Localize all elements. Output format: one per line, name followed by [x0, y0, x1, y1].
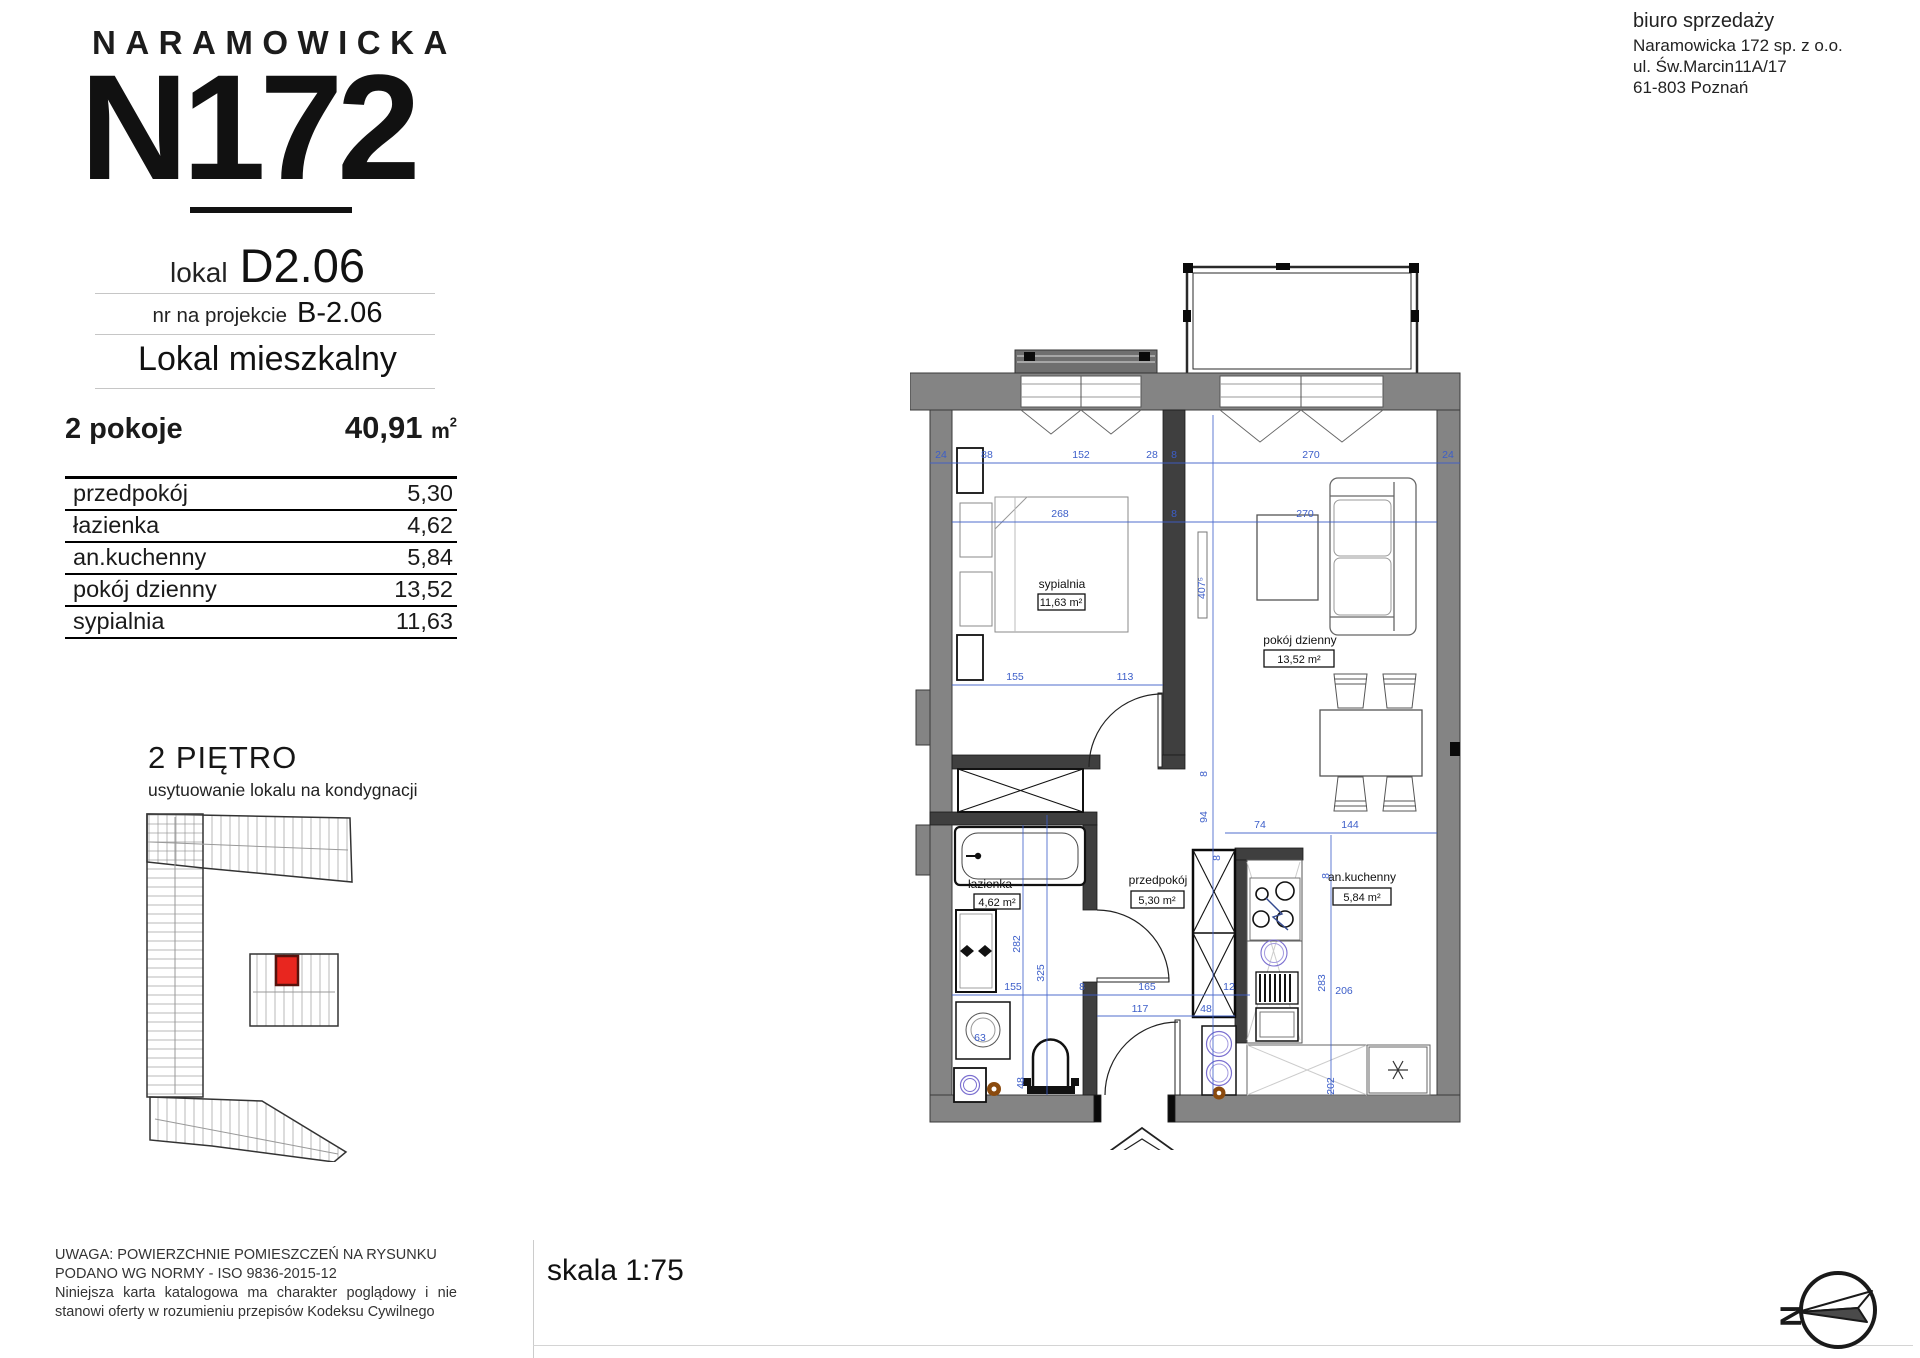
- room-name: pokój dzienny: [1263, 633, 1336, 647]
- scale-label: skala 1:75: [547, 1254, 684, 1288]
- disclaimer-line: UWAGA: POWIERZCHNIE POMIESZCZEŃ NA RYSUN…: [55, 1246, 457, 1265]
- lokal-label: lokal: [170, 257, 228, 289]
- dimension-label: 202: [1325, 1077, 1337, 1095]
- dimension-label: 283: [1316, 974, 1328, 992]
- dimension-label: 144: [1341, 819, 1359, 831]
- room-row: łazienka4,62: [65, 511, 457, 543]
- project-label: nr na projekcie: [153, 304, 287, 328]
- dimension-label: 325: [1035, 964, 1047, 982]
- room-area: 5,84 m²: [1343, 892, 1381, 904]
- dimension-label: 268: [1051, 508, 1069, 520]
- dimension-label: 206: [1335, 985, 1353, 997]
- room-area: 4,62 m²: [978, 897, 1016, 909]
- total-area-sup: 2: [450, 415, 457, 430]
- rooms-table-body: przedpokój5,30łazienka4,62an.kuchenny5,8…: [65, 479, 457, 639]
- divider: [95, 388, 435, 389]
- room-area: 11,63: [396, 607, 453, 635]
- north-letter: N: [1774, 1305, 1807, 1327]
- dimension-label: 113: [1117, 671, 1134, 683]
- dimension-label: 24: [935, 449, 947, 461]
- building-logo: N172: [80, 52, 415, 202]
- rooms-count: 2 pokoje: [65, 413, 183, 446]
- dimension-label: 8: [1198, 771, 1210, 777]
- dimension-label: 24: [1442, 449, 1454, 461]
- room-name: łazienka: [968, 877, 1012, 891]
- dimension-label: 282: [1011, 935, 1023, 953]
- room-area: 5,84: [407, 543, 453, 571]
- total-area: 40,91 m2: [345, 410, 457, 446]
- disclaimer: UWAGA: POWIERZCHNIE POMIESZCZEŃ NA RYSUN…: [55, 1246, 457, 1322]
- dimension-label: 48: [1200, 1003, 1212, 1015]
- room-label-pokoj-dzienny: pokój dzienny 13,52 m²: [1263, 633, 1336, 667]
- dimension-label: 165: [1138, 981, 1156, 993]
- wall-detail: [1450, 742, 1460, 756]
- room-area: 5,30 m²: [1138, 895, 1176, 907]
- room-name: sypialnia: [73, 607, 164, 635]
- project-number: B-2.06: [297, 297, 382, 330]
- logo-underline: [190, 207, 352, 213]
- dimension-label: 407⁵: [1196, 577, 1208, 599]
- dimension-label: 94: [1198, 811, 1210, 823]
- dimension-label: 74: [1254, 819, 1266, 831]
- disclaimer-line: PODANO WG NORMY - ISO 9836-2015-12: [55, 1265, 457, 1284]
- bedroom-wardrobe: [958, 769, 1083, 812]
- dimension-label: 155: [1006, 671, 1024, 683]
- kitchen-bottom-counter: [1247, 1045, 1430, 1095]
- room-area: 13,52 m²: [1277, 654, 1321, 666]
- floor-subtitle: usytuowanie lokalu na kondygnacji: [148, 780, 417, 801]
- toilet: [1023, 1040, 1079, 1094]
- room-row: pokój dzienny13,52: [65, 575, 457, 607]
- total-area-unit: m: [431, 420, 450, 443]
- kitchen-counter: [1247, 860, 1302, 1043]
- lokal-number: D2.06: [240, 238, 365, 293]
- corner-sink: [954, 1068, 986, 1102]
- room-label-an-kuchenny: an.kuchenny 5,84 m²: [1328, 870, 1396, 905]
- dimension-label: 8: [1171, 449, 1177, 461]
- entrance-marker: B-2.06: [1103, 1128, 1181, 1150]
- total-area-value: 40,91: [345, 410, 423, 445]
- floor-title: 2 PIĘTRO: [148, 740, 297, 776]
- divider: [95, 334, 435, 335]
- room-area: 5,30: [407, 479, 453, 507]
- dimension-label: 8: [1079, 981, 1085, 993]
- vanity-cabinet: [956, 910, 996, 992]
- building-outline: [147, 814, 352, 1162]
- washer-dryer-stack: [1202, 1026, 1236, 1100]
- window-awning: [1015, 350, 1157, 373]
- rooms-table: przedpokój5,30łazienka4,62an.kuchenny5,8…: [65, 476, 457, 639]
- floor-drain: [987, 1082, 1001, 1096]
- project-number-row: nr na projekcie B-2.06: [80, 297, 455, 330]
- lokal-row: lokal D2.06: [80, 238, 455, 293]
- office-address-line: Naramowicka 172 sp. z o.o.: [1633, 35, 1913, 56]
- dimension-label: 8: [1171, 508, 1177, 520]
- room-area: 4,62: [407, 511, 453, 539]
- sales-office-title: biuro sprzedaży: [1633, 10, 1913, 33]
- room-name: sypialnia: [1039, 577, 1086, 591]
- floor-plan: 2488152288270242688270155113407⁵89487414…: [910, 250, 1470, 1150]
- highlighted-unit: [276, 956, 298, 985]
- divider: [533, 1345, 1913, 1346]
- room-label-przedpokoj: przedpokój 5,30 m²: [1129, 873, 1188, 908]
- room-name: łazienka: [73, 511, 159, 539]
- room-name: pokój dzienny: [73, 575, 217, 603]
- office-address: Naramowicka 172 sp. z o.o.ul. Św.Marcin1…: [1633, 35, 1913, 98]
- dimension-label: 270: [1296, 508, 1314, 520]
- room-name: przedpokój: [1129, 873, 1188, 887]
- disclaimer-line: Niniejsza karta katalogowa ma charakter …: [55, 1284, 457, 1322]
- dimension-label: 63: [974, 1032, 986, 1044]
- office-address-line: 61-803 Poznań: [1633, 77, 1913, 98]
- room-area: 13,52: [394, 575, 453, 603]
- dimension-label: 28: [1146, 449, 1158, 461]
- dimension-label: 88: [981, 449, 993, 461]
- site-plan: [100, 802, 400, 1162]
- balcony: [1183, 263, 1419, 375]
- dimension-label: 155: [1004, 981, 1022, 993]
- room-row: an.kuchenny5,84: [65, 543, 457, 575]
- summary-row: 2 pokoje 40,91 m2: [65, 410, 457, 446]
- room-area: 11,63 m²: [1040, 597, 1083, 609]
- dimension-label: 270: [1302, 449, 1320, 461]
- catalog-sheet: NARAMOWICKA N172 lokal D2.06 nr na proje…: [0, 0, 1920, 1358]
- divider: [533, 1240, 534, 1358]
- room-label-sypialnia: sypialnia 11,63 m²: [1038, 577, 1086, 610]
- balcony-door-leaf: [1198, 532, 1207, 618]
- washing-machine: [956, 1002, 1010, 1059]
- dimension-label: 12: [1223, 981, 1235, 993]
- dimension-label: 48: [1015, 1077, 1027, 1089]
- compass-icon: N: [1770, 1258, 1900, 1358]
- dimension-label: 8: [1211, 855, 1223, 861]
- bedroom-window: [1021, 376, 1141, 434]
- room-name: an.kuchenny: [73, 543, 206, 571]
- room-row: przedpokój5,30: [65, 479, 457, 511]
- bedroom-furniture: [957, 448, 1128, 680]
- dimension-label: 117: [1132, 1003, 1149, 1015]
- office-address-line: ul. Św.Marcin11A/17: [1633, 56, 1913, 77]
- sales-office-block: biuro sprzedaży Naramowicka 172 sp. z o.…: [1633, 10, 1913, 98]
- room-name: an.kuchenny: [1328, 870, 1396, 884]
- unit-type: Lokal mieszkalny: [80, 340, 455, 379]
- room-name: przedpokój: [73, 479, 188, 507]
- divider: [95, 293, 435, 294]
- room-row: sypialnia11,63: [65, 607, 457, 639]
- dimension-label: 152: [1072, 449, 1090, 461]
